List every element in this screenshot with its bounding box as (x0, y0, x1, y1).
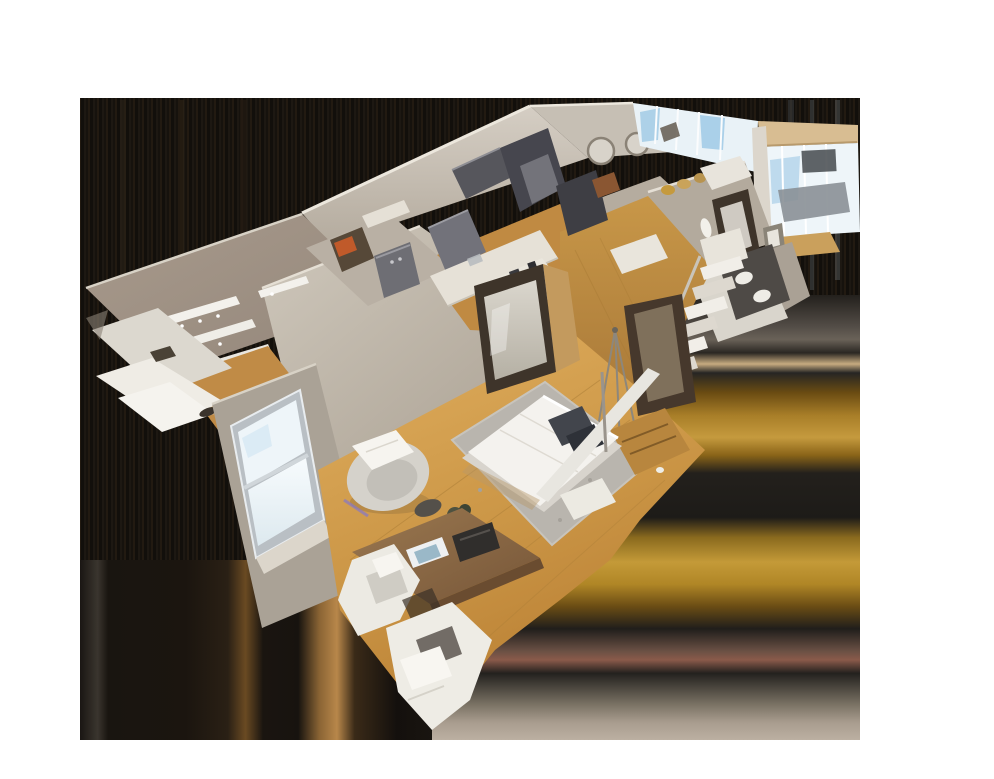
window-beam (758, 121, 858, 147)
rug-speckle (588, 478, 592, 482)
hook-dot (198, 319, 202, 323)
artifact-column (180, 100, 184, 270)
artifact-column (120, 100, 126, 290)
dollhouse-canvas (0, 0, 994, 779)
washer-dial (390, 260, 394, 264)
round-wall-mirror (588, 138, 614, 164)
dollhouse-viewport[interactable] (0, 0, 994, 779)
hook-dot (218, 342, 222, 346)
hook-dot (270, 292, 274, 296)
tv-silhouette (801, 149, 836, 173)
bar-stool (661, 185, 675, 195)
rug-speckle (478, 488, 482, 492)
bar-stool (677, 179, 691, 189)
artifact-column (240, 100, 247, 250)
tripod-joint (612, 327, 618, 333)
hook-dot (216, 314, 220, 318)
stray-paper (656, 467, 664, 473)
rug-speckle (558, 518, 562, 522)
washer-dial (398, 257, 402, 261)
